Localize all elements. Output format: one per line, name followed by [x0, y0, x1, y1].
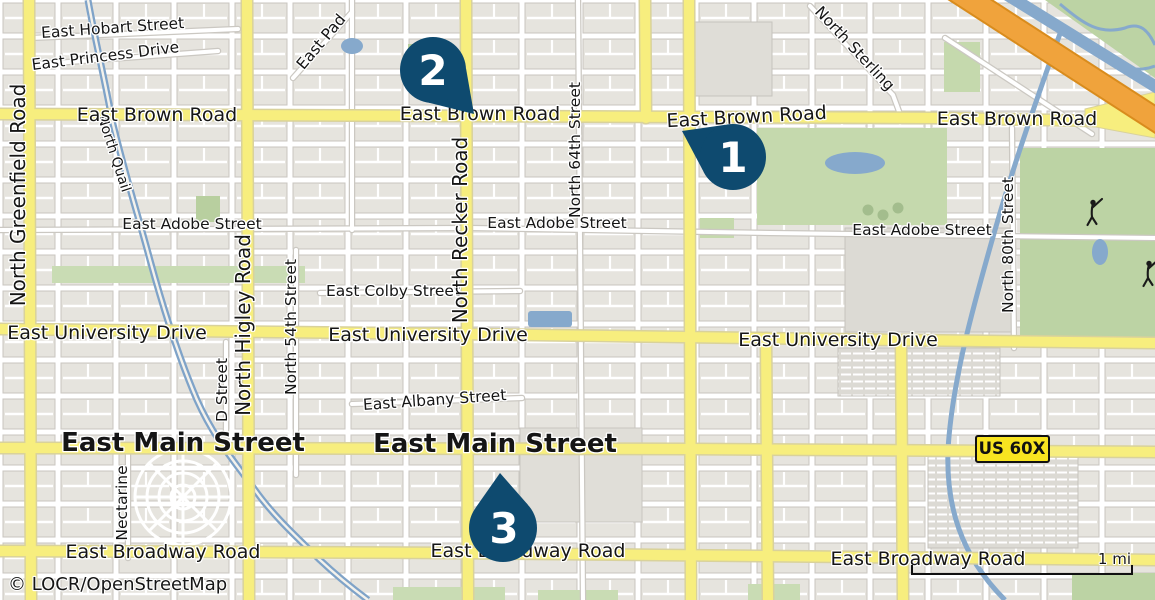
street-label-n54: North 54th Street: [282, 259, 300, 395]
street-label-dstreet: D Street: [213, 358, 231, 422]
road-label-higley: North Higley Road: [231, 234, 255, 416]
road-label-brown-1: East Brown Road: [77, 104, 237, 126]
street-label-colby: East Colby Street: [326, 282, 460, 300]
road-label-brown-4: East Brown Road: [937, 108, 1097, 130]
road-label-broadway-1: East Broadway Road: [66, 541, 261, 563]
road-label-broadway-3: East Broadway Road: [831, 548, 1026, 570]
attribution: © LOCR/OpenStreetMap: [8, 574, 227, 595]
street-label-adobe-1: East Adobe Street: [122, 215, 261, 233]
road-label-university-1: East University Drive: [7, 322, 207, 344]
street-label-adobe-3: East Adobe Street: [852, 221, 991, 239]
map-marker-3-label: 3: [489, 504, 518, 553]
street-label-n80: North 80th Street: [999, 177, 1017, 313]
map-canvas[interactable]: East Hobart Street East Princess Drive E…: [0, 0, 1155, 600]
road-label-main-2: East Main Street: [373, 429, 617, 459]
map-viewport[interactable]: East Hobart Street East Princess Drive E…: [0, 0, 1155, 600]
scale-label: 1 mi: [1098, 550, 1131, 568]
road-label-greenfield: North Greenfield Road: [6, 84, 30, 307]
street-label-adobe-2: East Adobe Street: [487, 214, 626, 232]
radial-subdivision: [135, 449, 231, 545]
street-label-n64: North 64th Street: [566, 82, 584, 218]
road-label-main-1: East Main Street: [61, 428, 305, 458]
road-label-university-3: East University Drive: [738, 329, 938, 351]
street-label-nectarine: Nectarine: [113, 465, 131, 540]
map-marker-2-label: 2: [418, 46, 447, 95]
route-shield: US 60X: [976, 436, 1049, 462]
route-shield-label: US 60X: [979, 439, 1046, 458]
road-label-recker: North Recker Road: [448, 137, 472, 324]
map-marker-1-label: 1: [718, 133, 747, 182]
road-label-brown-2: East Brown Road: [400, 103, 560, 125]
road-label-university-2: East University Drive: [328, 324, 528, 346]
